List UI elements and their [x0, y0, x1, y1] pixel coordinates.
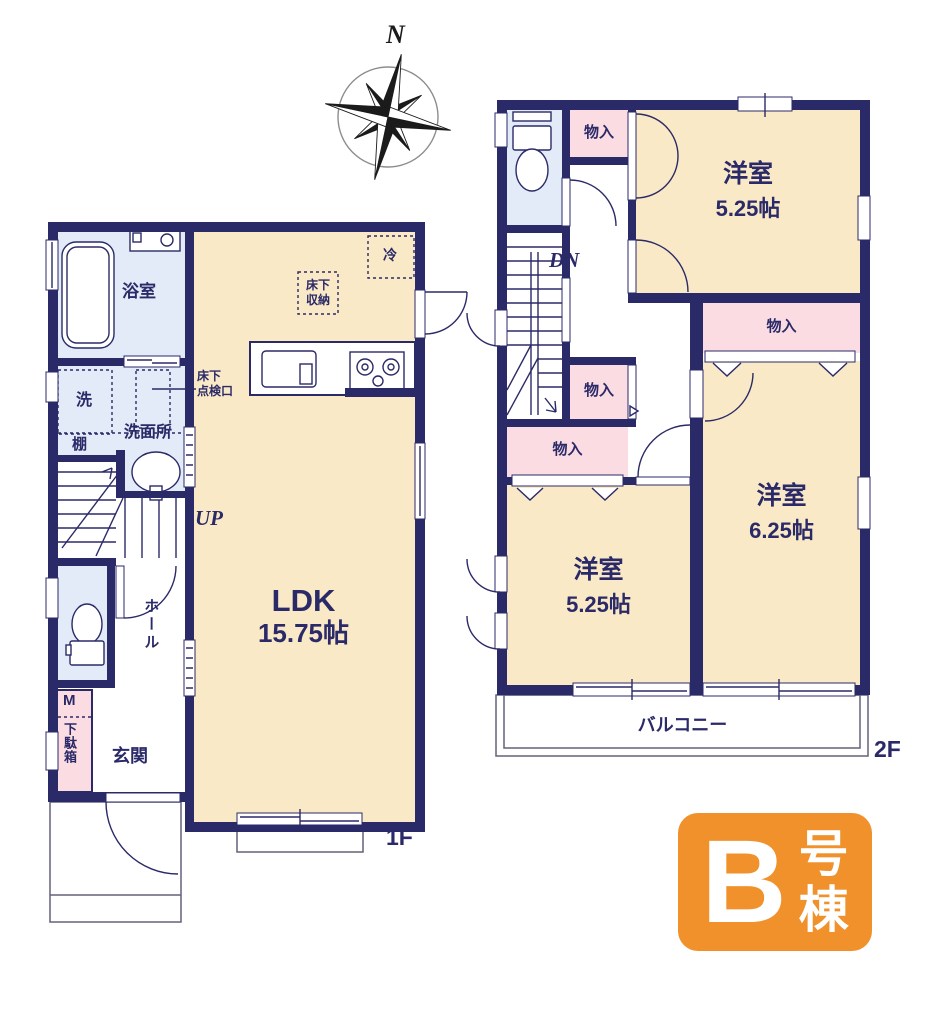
door-arc: [425, 292, 467, 334]
compass-north-label: N: [386, 20, 405, 50]
door-leaf: [562, 178, 570, 226]
bath-counter: [130, 229, 180, 251]
compass-rose-icon: [312, 41, 464, 193]
storage-label-mid: 物入: [570, 382, 628, 399]
room-label-yoshitsu-2: 洋室: [703, 482, 860, 511]
room-size-yoshitsu-3: 5.25帖: [507, 592, 690, 617]
inspection-line2: 点検口: [197, 384, 233, 398]
room-label-hall: ホール: [142, 598, 159, 652]
room-label-yoshitsu-1: 洋室: [636, 160, 860, 189]
underfloor-line1: 床下: [306, 278, 330, 292]
room-size-yoshitsu-2: 6.25帖: [703, 518, 860, 543]
room-label-bathroom: 浴室: [122, 282, 156, 302]
label-shoe-cabinet: 下駄箱: [61, 722, 76, 764]
suffix-char-2: 棟: [799, 882, 849, 938]
door-arc: [638, 425, 690, 477]
stairs-2f: [507, 247, 562, 415]
entrance-door-leaf: [106, 793, 180, 802]
underfloor-line2: 収納: [306, 293, 330, 307]
balcony-label: バルコニー: [497, 715, 868, 736]
floor1-label: 1F: [386, 824, 413, 850]
building-suffix: 号 棟: [799, 826, 849, 938]
stairs-down-label: DN: [549, 248, 579, 272]
room-label-entrance: 玄関: [112, 746, 148, 767]
building-badge: B 号 棟: [678, 813, 872, 951]
room-label-yoshitsu-3: 洋室: [507, 556, 690, 585]
room-label-laundry: 洗: [76, 392, 92, 410]
storage-label-right: 物入: [703, 318, 860, 335]
room-label-washroom: 洗面所: [124, 424, 172, 442]
storage-label-wide: 物入: [507, 441, 628, 458]
room-size-yoshitsu-1: 5.25帖: [636, 196, 860, 221]
label-meter-box: M: [63, 692, 76, 709]
kitchen-counter: [250, 342, 415, 397]
bathtub: [62, 242, 114, 348]
storage-label-top: 物入: [570, 124, 628, 141]
building-letter: B: [701, 823, 786, 941]
inspection-line1: 床下: [197, 369, 221, 383]
room-size-ldk: 15.75帖: [227, 619, 380, 649]
entrance-door-arc: [106, 802, 178, 874]
floor-plan-page: N 浴室 洗 床下点検口 棚 洗面所 UP ホール M 下駄箱 玄関 LDK 1…: [0, 0, 947, 1024]
label-fridge-space: 冷: [383, 247, 397, 263]
door-leaf: [116, 566, 124, 618]
room-label-ldk: LDK: [237, 583, 370, 619]
label-inspection-hatch: 床下点検口: [197, 369, 233, 399]
door-arc: [570, 180, 616, 226]
label-underfloor-storage: 床下収納: [299, 278, 337, 308]
floor2-label: 2F: [874, 736, 901, 762]
suffix-char-1: 号: [799, 826, 849, 882]
room-label-shelf: 棚: [72, 436, 87, 453]
stairs-up-label: UP: [195, 506, 223, 530]
